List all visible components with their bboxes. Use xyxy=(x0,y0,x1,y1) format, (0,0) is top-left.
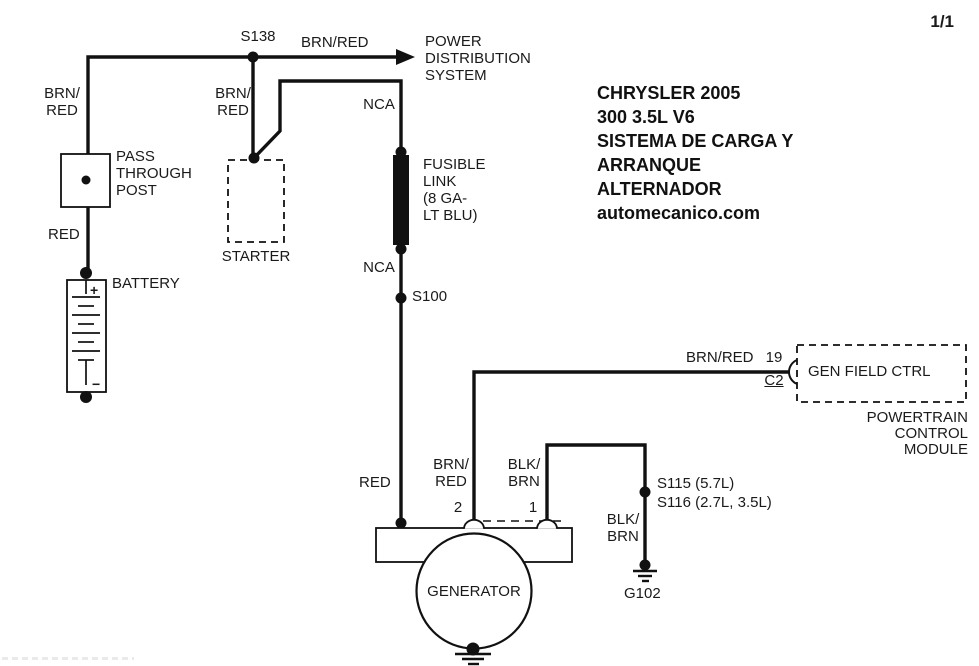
battery-plus-sign: + xyxy=(90,282,98,299)
power-distribution-label-line3: SYSTEM xyxy=(425,68,487,85)
battery-minus-sign: − xyxy=(92,376,100,393)
wiring-diagram-canvas xyxy=(0,0,979,666)
fusible-link-bottom-dot xyxy=(396,244,407,255)
brn-red-battery-label-line2: RED xyxy=(40,103,84,120)
gen-field-ctrl-label: GEN FIELD CTRL xyxy=(808,364,931,381)
battery-negative-terminal-dot xyxy=(80,391,92,403)
power-distribution-label-line1: POWER xyxy=(425,34,482,51)
starter-label: STARTER xyxy=(221,249,291,266)
pcm-connector-c2-label: C2 xyxy=(760,373,788,390)
pcm-pin-19-label: 19 xyxy=(760,350,788,367)
generator-label: GENERATOR xyxy=(414,584,534,601)
brn-red-field-label-line1: BRN/ xyxy=(428,457,474,474)
pass-through-post-label-line1: PASS xyxy=(116,149,155,166)
brn-red-field-label-line2: RED xyxy=(428,474,474,491)
starter-box xyxy=(228,160,284,242)
red-battery-label: RED xyxy=(48,227,80,244)
s115-s116-junction-dot xyxy=(640,487,651,498)
red-generator-label: RED xyxy=(359,475,391,492)
battery-positive-terminal-dot xyxy=(80,267,92,279)
brn-red-battery-label-line1: BRN/ xyxy=(40,86,84,103)
nca-upper-label: NCA xyxy=(358,97,400,114)
generator-output-terminal-dot xyxy=(396,518,407,529)
fusible-link-bar xyxy=(393,155,409,245)
starter-terminal-dot xyxy=(249,153,260,164)
wire-starter-to-fusible-link xyxy=(254,81,401,158)
blk-brn-ground-label-line2: BRN xyxy=(600,529,646,546)
arrow-to-power-distribution-icon xyxy=(396,49,415,65)
title-line-5: ALTERNADOR xyxy=(597,177,722,201)
pass-through-post-dot xyxy=(82,176,91,185)
g102-label: G102 xyxy=(624,586,661,603)
watermark-marks xyxy=(2,657,134,660)
wiring-diagram-page: 1/1 CHRYSLER 2005 300 3.5L V6 SISTEMA DE… xyxy=(0,0,979,666)
g102-ground-icon xyxy=(633,571,657,581)
title-line-1: CHRYSLER 2005 xyxy=(597,81,740,105)
fusible-link-label-line3: (8 GA- xyxy=(423,191,467,208)
pcm-connector-arc-icon xyxy=(789,360,797,384)
brn-red-starter-label-line1: BRN/ xyxy=(211,86,255,103)
blk-brn-ground-label-line1: BLK/ xyxy=(600,512,646,529)
title-line-2: 300 3.5L V6 xyxy=(597,105,695,129)
fusible-link-top-dot xyxy=(396,147,407,158)
brn-red-pds-label: BRN/RED xyxy=(301,35,369,52)
generator-pin-1-label: 1 xyxy=(524,500,542,517)
title-line-6: automecanico.com xyxy=(597,201,760,225)
fusible-link-label-line1: FUSIBLE xyxy=(423,157,486,174)
s100-junction-dot xyxy=(396,293,407,304)
battery-label: BATTERY xyxy=(112,276,180,293)
title-line-4: ARRANQUE xyxy=(597,153,701,177)
generator-pin-2-label: 2 xyxy=(449,500,467,517)
power-distribution-label-line2: DISTRIBUTION xyxy=(425,51,531,68)
fusible-link-label-line2: LINK xyxy=(423,174,456,191)
brn-red-starter-label-line2: RED xyxy=(211,103,255,120)
pcm-label-line3: MODULE xyxy=(838,442,968,459)
s116-label: S116 (2.7L, 3.5L) xyxy=(657,495,772,512)
terminal-2-bump xyxy=(464,520,484,529)
s138-junction-dot xyxy=(248,52,259,63)
g102-ground-dot xyxy=(640,560,651,571)
s115-label: S115 (5.7L) xyxy=(657,476,734,493)
brn-red-pcm-label: BRN/RED xyxy=(686,350,754,367)
pass-through-post-label-line3: POST xyxy=(116,183,157,200)
title-line-3: SISTEMA DE CARGA Y xyxy=(597,129,793,153)
s100-label: S100 xyxy=(412,289,447,306)
s138-label: S138 xyxy=(236,29,280,46)
nca-lower-label: NCA xyxy=(358,260,400,277)
page-indicator: 1/1 xyxy=(916,14,954,31)
blk-brn-generator-label-line2: BRN xyxy=(501,474,547,491)
fusible-link-label-line4: LT BLU) xyxy=(423,208,477,225)
blk-brn-generator-label-line1: BLK/ xyxy=(501,457,547,474)
pass-through-post-label-line2: THROUGH xyxy=(116,166,192,183)
